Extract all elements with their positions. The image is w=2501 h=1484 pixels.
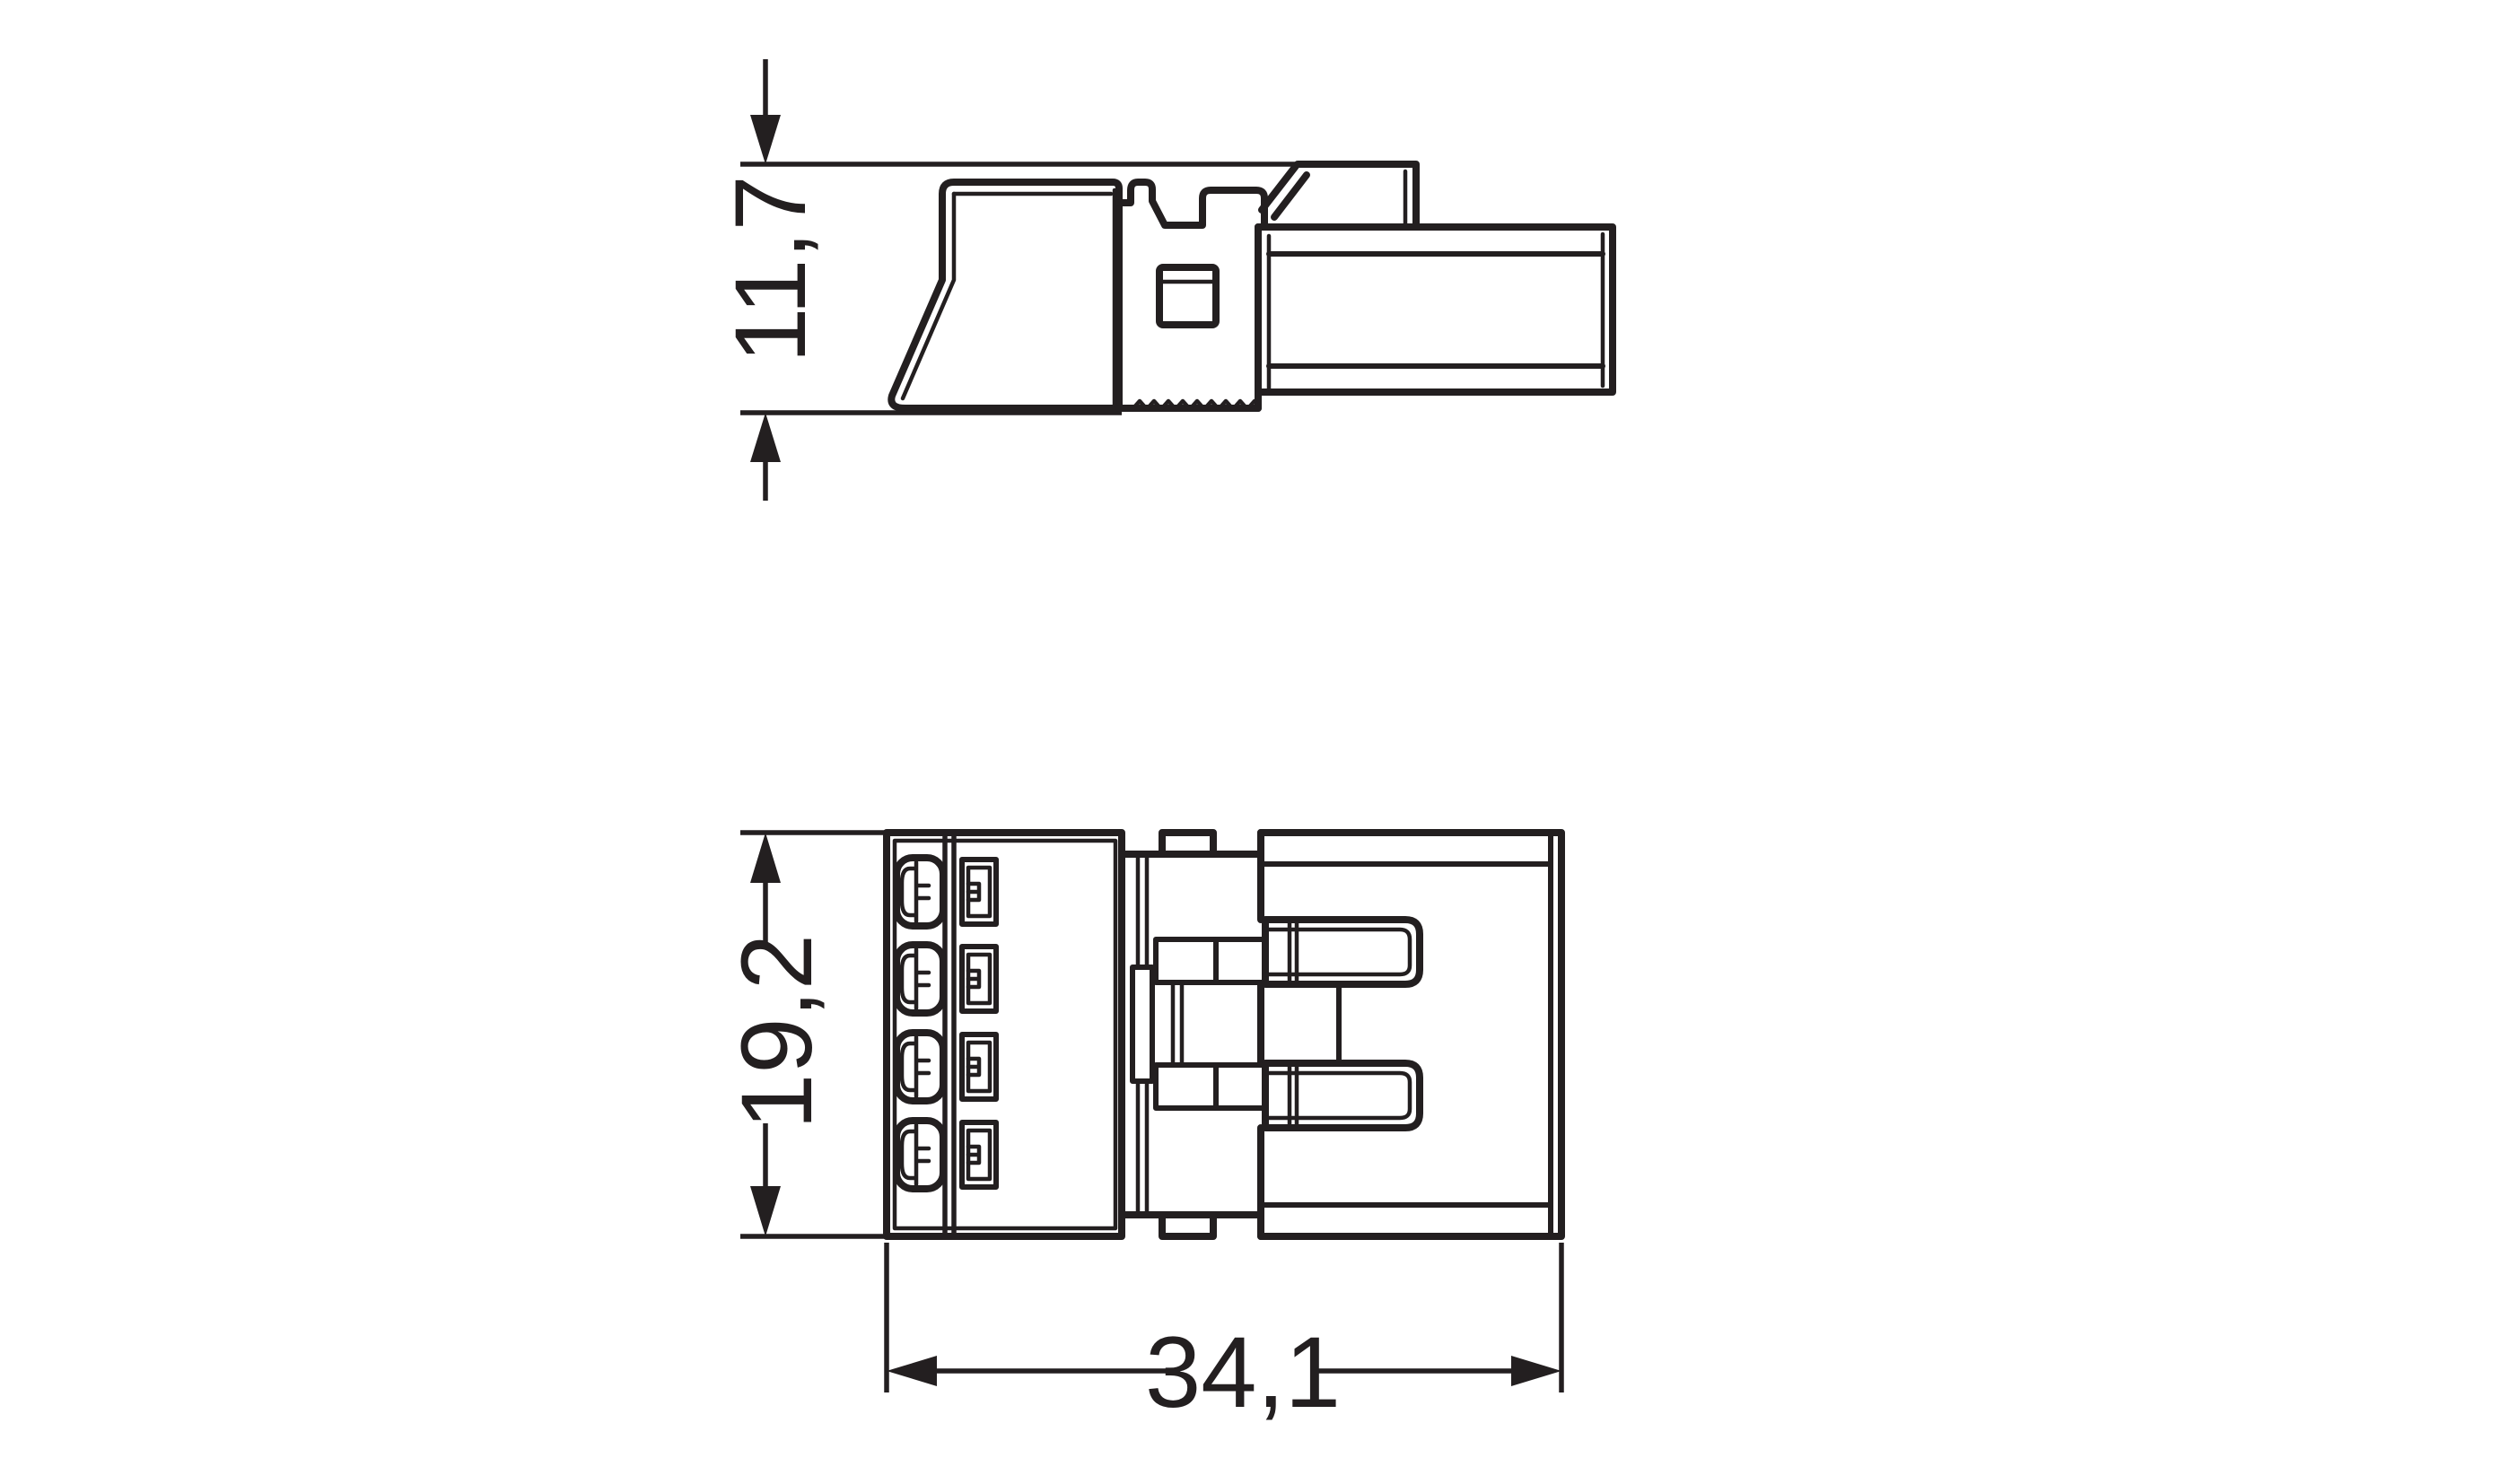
- connector-technical-drawing: 11,7: [0, 0, 2501, 1484]
- front-view: 19,2 34,1: [721, 833, 1561, 1428]
- release-slot: [962, 860, 996, 924]
- wire-entry-port: [896, 945, 943, 1013]
- mid-body-top-contour: [1119, 182, 1264, 225]
- dimension-front-height: 19,2: [721, 833, 887, 1236]
- side-view: 11,7: [714, 59, 1613, 501]
- latch-pad-connector: [1173, 982, 1182, 1065]
- latch-chamfer-inner: [1274, 175, 1307, 217]
- neck-section: [1122, 833, 1261, 1236]
- center-seal-rib: [1132, 967, 1152, 1081]
- dimension-arrow-down-icon: [750, 115, 781, 164]
- latch-arms: [1156, 920, 1420, 1128]
- upper-latch-bar: [1216, 939, 1265, 982]
- dimension-arrow-down-icon: [750, 1186, 781, 1236]
- wire-entry-port: [896, 1121, 943, 1189]
- release-slot: [962, 1122, 996, 1187]
- dimension-arrow-up-icon: [750, 413, 781, 462]
- lever-slope-inner-line: [903, 194, 954, 398]
- rear-housing: [1261, 833, 1561, 1236]
- dimension-front-width: 34,1: [887, 1243, 1561, 1428]
- latch-block-outline: [1298, 164, 1416, 227]
- release-slots: [962, 860, 996, 1187]
- lower-latch-bar: [1216, 1065, 1265, 1108]
- dimension-arrow-left-icon: [887, 1356, 937, 1386]
- dimension-arrow-up-icon: [750, 833, 781, 883]
- release-slot: [962, 1034, 996, 1099]
- wire-entry-port: [896, 1033, 943, 1101]
- dimension-arrow-right-icon: [1511, 1356, 1561, 1386]
- drawing-canvas: 11,7: [0, 0, 2501, 1484]
- wire-entry-port: [896, 858, 943, 926]
- dimension-side-height: 11,7: [714, 59, 1407, 501]
- rear-housing-outline: [1261, 833, 1561, 1236]
- actuation-window: [1159, 267, 1216, 325]
- latch-chamfer-outer: [1262, 166, 1296, 210]
- side-view-part: [891, 164, 1613, 409]
- dimension-label-side-height: 11,7: [714, 175, 826, 363]
- release-slot: [962, 947, 996, 1011]
- wire-entry-ports: [896, 858, 943, 1189]
- dimension-label-front-width: 34,1: [1145, 1316, 1341, 1428]
- lever-outline: [891, 182, 1119, 408]
- upper-latch-pad: [1156, 939, 1216, 982]
- dimension-label-front-height: 19,2: [721, 934, 833, 1130]
- front-view-part: [887, 833, 1561, 1236]
- lower-latch-pad: [1156, 1065, 1216, 1108]
